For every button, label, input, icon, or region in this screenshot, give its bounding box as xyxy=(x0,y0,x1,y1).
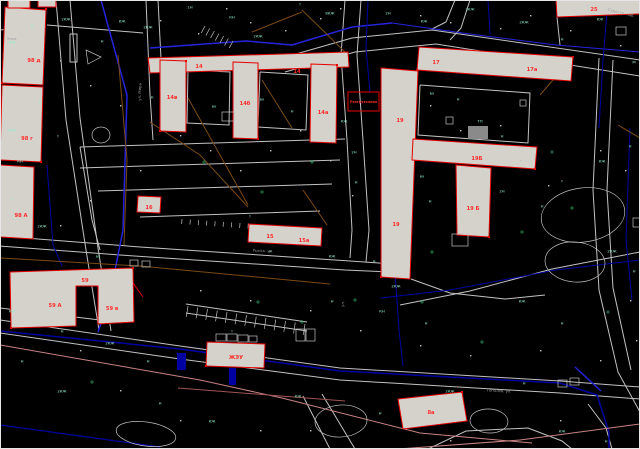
building-label: 14 xyxy=(293,69,301,75)
point-mark xyxy=(500,125,501,126)
annotation-label: М xyxy=(632,60,635,65)
building-label: 8а xyxy=(427,410,435,416)
point-mark xyxy=(200,290,201,291)
red-corner-mark xyxy=(461,391,463,393)
point-mark xyxy=(600,150,601,151)
annotation-label: Н xyxy=(331,299,334,304)
street-name-label: Рыньк. ул. xyxy=(253,248,274,254)
red-corner-mark xyxy=(45,8,47,10)
building-label: 14а xyxy=(318,110,329,116)
point-mark xyxy=(420,345,421,346)
point-mark xyxy=(90,200,91,201)
annotation-label: 2Н xyxy=(499,189,504,194)
red-corner-mark xyxy=(10,327,12,329)
point-mark xyxy=(60,60,61,61)
annotation-label: вх xyxy=(96,254,101,259)
annotation-label: ТП xyxy=(476,119,482,124)
annotation-label: КЖ xyxy=(209,419,217,424)
point-mark xyxy=(260,430,261,431)
filled-structure xyxy=(177,353,186,370)
annotation-label: Н xyxy=(561,37,564,42)
point-mark xyxy=(450,22,451,23)
cad-viewport[interactable]: 98 д98 г98 А5959 А59 в141414в14б14а16151… xyxy=(0,0,640,449)
annotation-label: 2КЖ xyxy=(37,224,47,229)
annotation-label: 2КЖ xyxy=(105,341,115,346)
annotation-label: Н xyxy=(373,259,376,264)
annotation-label: Н xyxy=(159,401,162,406)
filled-structure xyxy=(468,126,488,139)
point-mark xyxy=(250,300,251,301)
annotation-label: КЖ xyxy=(341,119,349,124)
annotation-label: 2КЖ xyxy=(445,389,455,394)
building-label: 59 xyxy=(81,278,89,284)
point-mark xyxy=(160,20,161,21)
annotation-label: КЖ xyxy=(421,19,429,24)
point-mark xyxy=(620,45,621,46)
point-mark xyxy=(340,8,341,9)
annotation-label: Н xyxy=(147,359,150,364)
point-mark xyxy=(540,350,541,351)
point-mark xyxy=(420,15,421,16)
annotation-label: Н xyxy=(291,109,294,114)
red-corner-mark xyxy=(380,276,382,278)
point-mark xyxy=(600,360,601,361)
annotation-label: КН xyxy=(17,159,23,164)
annotation-label: Н xyxy=(501,134,504,139)
annotation-label: 2КЖ xyxy=(519,20,529,25)
point-mark xyxy=(330,160,331,161)
building-shape xyxy=(248,224,322,246)
point-mark xyxy=(210,150,211,151)
annotation-label: 2КЖ xyxy=(391,284,401,289)
building-label: 19 xyxy=(392,222,400,228)
point-mark xyxy=(530,15,531,16)
point-mark xyxy=(560,420,561,421)
red-corner-mark xyxy=(185,60,187,62)
building-label: 19 xyxy=(396,118,404,124)
annotation-label: вх xyxy=(420,174,425,179)
point-mark xyxy=(140,170,141,171)
annotation-label: КЖ xyxy=(559,429,567,434)
building-label: 15а xyxy=(299,238,310,244)
red-corner-mark xyxy=(488,236,490,238)
annotation-label: 2Н xyxy=(385,11,390,16)
red-corner-mark xyxy=(132,267,134,269)
point-mark xyxy=(320,18,321,19)
point-mark xyxy=(636,340,637,341)
point-mark xyxy=(500,28,501,29)
annotation-label: КН xyxy=(229,15,235,20)
annotation-label: вх xyxy=(260,97,265,102)
point-mark xyxy=(630,300,631,301)
annotation-label: Н xyxy=(379,411,382,416)
annotation-label: Н xyxy=(633,269,636,274)
annotation-label: КН xyxy=(379,309,385,314)
annotation-label: 2КЖ xyxy=(143,25,153,30)
annotation-label: Н xyxy=(457,97,460,102)
building-label: 59 А xyxy=(48,303,61,309)
point-mark xyxy=(360,330,361,331)
street-name-label: ул. xyxy=(340,301,345,307)
annotation-label: 2Н xyxy=(351,150,356,155)
annotation-label: Н xyxy=(39,100,42,105)
annotation-label: 2КЖ xyxy=(253,34,263,39)
red-corner-mark xyxy=(336,64,338,66)
annotation-label: 1Н xyxy=(187,5,192,10)
point-mark xyxy=(450,440,451,441)
annotation-label: Н xyxy=(355,180,358,185)
point-mark xyxy=(470,355,471,356)
point-mark xyxy=(80,350,81,351)
red-corner-mark xyxy=(534,168,536,170)
point-mark xyxy=(250,22,251,23)
annotation-label: Н xyxy=(131,289,134,294)
annotation-label: Н xyxy=(61,329,64,334)
annotation-label: Н xyxy=(425,321,428,326)
building-shape xyxy=(8,1,30,8)
red-corner-mark xyxy=(416,69,418,71)
building-label: 14 xyxy=(195,64,203,70)
building-label: ЖЭУ xyxy=(229,355,243,361)
point-mark xyxy=(198,33,199,34)
annotation-label: КЖ xyxy=(329,254,337,259)
point-mark xyxy=(285,30,286,31)
building-shape xyxy=(38,1,56,7)
point-mark xyxy=(520,160,521,161)
building-label: 19 Б xyxy=(467,206,480,212)
red-corner-mark xyxy=(572,56,574,58)
building-label: 19Б xyxy=(471,156,482,162)
annotation-label: Н xyxy=(523,381,526,386)
building-shape xyxy=(10,268,134,328)
red-corner-mark xyxy=(40,161,42,163)
building-label: 17а xyxy=(527,67,538,73)
annotation-label: 2КЖ xyxy=(7,128,17,133)
red-corner-mark xyxy=(1,82,3,84)
point-mark xyxy=(460,130,461,131)
building-label: 17 xyxy=(432,60,440,66)
annotation-label: Н xyxy=(31,24,34,29)
point-mark xyxy=(60,225,61,226)
point-mark xyxy=(352,195,353,196)
point-mark xyxy=(548,185,549,186)
building-label: 15 xyxy=(266,234,274,240)
map-canvas[interactable]: 98 д98 г98 А5959 А59 в141414в14б14а16151… xyxy=(1,1,639,448)
point-mark xyxy=(180,420,181,421)
annotation-label: КЖ xyxy=(295,394,303,399)
annotation-label: 2КЖ xyxy=(61,17,71,22)
point-mark xyxy=(226,8,227,9)
building-label: 98 г xyxy=(21,136,33,142)
annotation-label: Н xyxy=(561,321,564,326)
point-mark xyxy=(310,310,311,311)
point-mark xyxy=(240,170,241,171)
point-mark xyxy=(310,430,311,431)
building-label: 98 д xyxy=(27,58,40,64)
annotation-label: Н xyxy=(605,439,608,444)
building-label: 98 А xyxy=(14,213,27,219)
annotation-label: 3КЖ xyxy=(465,7,475,12)
annotation-label: Н xyxy=(21,359,24,364)
building-shape xyxy=(1,165,34,239)
building-label: 14в xyxy=(167,95,178,101)
annotation-label: 8КЖ xyxy=(325,11,335,16)
point-mark xyxy=(120,390,121,391)
annotation-label: Н xyxy=(541,204,544,209)
building-label: 14б xyxy=(240,100,251,107)
red-corner-mark xyxy=(205,365,207,367)
annotation-label: 2КЖ xyxy=(607,249,617,254)
loading-zone-label: Разгрузочная xyxy=(350,100,377,104)
annotation-label: 2КЖ xyxy=(57,389,67,394)
building-shape xyxy=(310,64,337,143)
point-mark xyxy=(120,105,121,106)
annotation-label: Н xyxy=(629,144,632,149)
building-shape xyxy=(2,7,46,85)
point-mark xyxy=(180,135,181,136)
annotation-label: Н xyxy=(151,95,154,100)
building-label: 16 xyxy=(145,205,153,211)
filled-structure xyxy=(229,368,236,385)
point-mark xyxy=(300,130,301,131)
street-name-label: ул. Мира xyxy=(137,83,143,101)
annotation-label: Н xyxy=(429,199,432,204)
red-corner-mark xyxy=(159,130,161,132)
annotation-label: КЖ xyxy=(599,159,607,164)
annotation-label: КЖ xyxy=(9,309,17,314)
annotation-label: Н xyxy=(101,39,104,44)
building-shape xyxy=(456,165,491,237)
point-mark xyxy=(430,105,431,106)
annotation-label: КЖ xyxy=(519,299,527,304)
point-mark xyxy=(625,170,626,171)
building-label: 59 в xyxy=(106,306,119,312)
building-shape xyxy=(1,85,43,162)
red-corner-mark xyxy=(257,138,259,140)
building-label: 25 xyxy=(590,7,598,13)
point-mark xyxy=(90,85,91,86)
annotation-label: вх xyxy=(430,91,435,96)
point-mark xyxy=(270,150,271,151)
annotation-label: вх xyxy=(212,104,217,109)
point-mark xyxy=(570,30,571,31)
annotation-label: КЖ xyxy=(597,17,605,22)
annotation-label: КЖ xyxy=(119,19,127,24)
street-name-label: 3тол. xyxy=(7,36,18,41)
